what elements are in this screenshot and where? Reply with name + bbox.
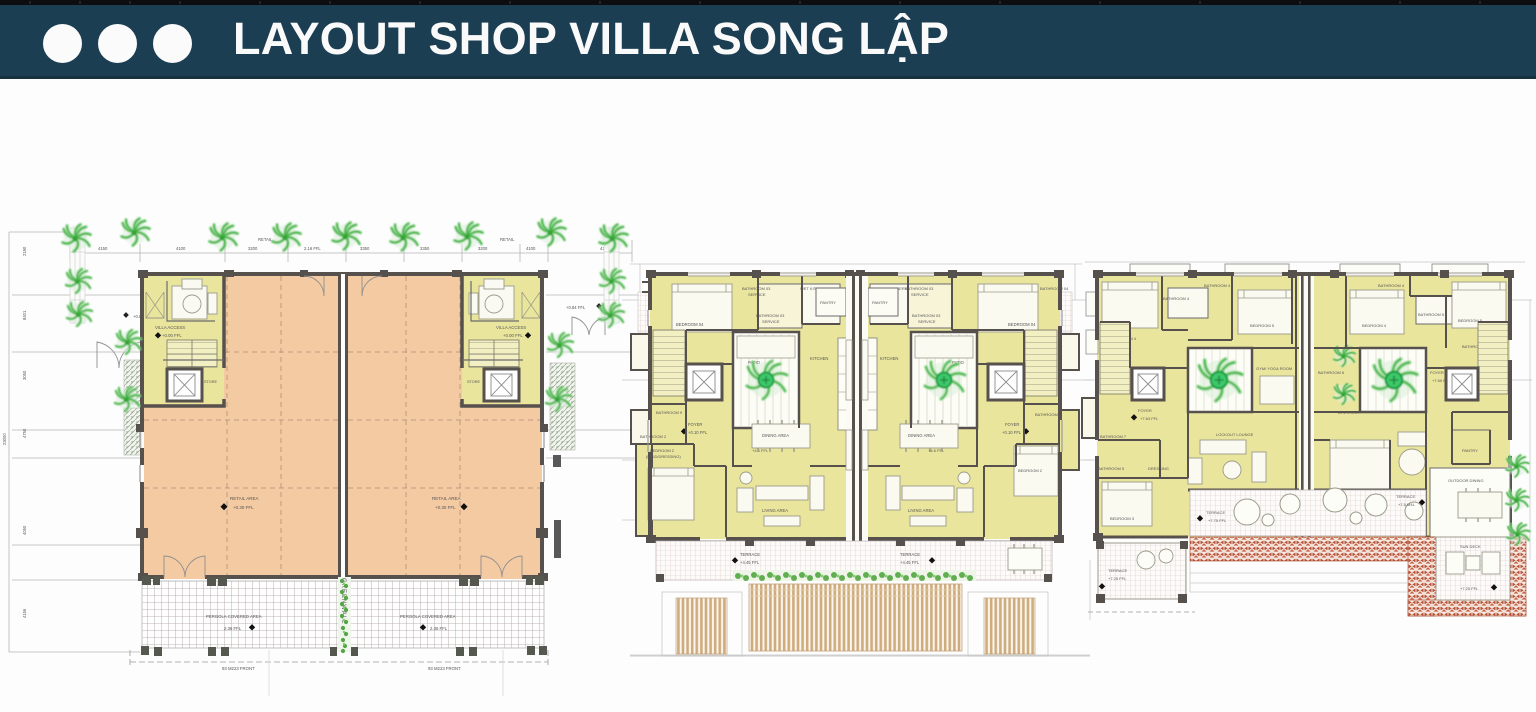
svg-text:93 M223 FRONT: 93 M223 FRONT <box>428 666 461 671</box>
svg-text:KITCHEN: KITCHEN <box>810 356 828 361</box>
svg-text:3200: 3200 <box>478 246 488 251</box>
svg-text:+7.25 FFL: +7.25 FFL <box>1460 586 1479 591</box>
svg-text:+0.30 FFL: +0.30 FFL <box>233 505 254 510</box>
svg-text:PANTRY: PANTRY <box>872 300 888 305</box>
svg-text:TERRACE: TERRACE <box>900 552 920 557</box>
svg-text:+0.84 FFL: +0.84 FFL <box>566 305 586 310</box>
svg-text:PERGOLA COVERED AREA: PERGOLA COVERED AREA <box>400 614 456 619</box>
svg-text:3200: 3200 <box>248 246 258 251</box>
svg-text:RETAIL: RETAIL <box>258 237 273 242</box>
svg-text:2.16 FFL: 2.16 FFL <box>304 246 321 251</box>
svg-text:STORE: STORE <box>204 380 217 384</box>
svg-text:FOYER: FOYER <box>1430 370 1444 375</box>
svg-text:LOCKOUT LOUNGE: LOCKOUT LOUNGE <box>1216 432 1254 437</box>
svg-text:4100: 4100 <box>176 246 186 251</box>
svg-text:BATHROOM 6: BATHROOM 6 <box>1318 370 1345 375</box>
svg-text:BEDROOM 04: BEDROOM 04 <box>676 322 704 327</box>
svg-text:PANTRY: PANTRY <box>820 300 836 305</box>
svg-text:STORE: STORE <box>467 380 480 384</box>
svg-text:FOYER: FOYER <box>1138 408 1152 413</box>
svg-text:BATHROOM 4: BATHROOM 4 <box>1378 283 1405 288</box>
svg-text:SERVICE: SERVICE <box>748 292 766 297</box>
svg-text:TERRACE: TERRACE <box>740 552 760 557</box>
svg-text:BATHROOM 04: BATHROOM 04 <box>1040 286 1069 291</box>
svg-text:+7.75 FFL: +7.75 FFL <box>1208 518 1227 523</box>
svg-text:3350: 3350 <box>420 246 430 251</box>
svg-text:BATHROOM 5: BATHROOM 5 <box>1418 312 1445 317</box>
svg-text:+0.10 FFL: +0.10 FFL <box>1002 430 1022 435</box>
svg-text:23000: 23000 <box>2 433 7 445</box>
svg-text:VILLA ACCESS: VILLA ACCESS <box>496 325 526 330</box>
svg-text:+0.00 FFL: +0.00 FFL <box>503 333 523 338</box>
svg-text:2190: 2190 <box>22 246 27 256</box>
svg-text:BATHROOM 7: BATHROOM 7 <box>1100 434 1127 439</box>
svg-text:GYM/ YOGA ROOM: GYM/ YOGA ROOM <box>1256 366 1292 371</box>
svg-text:PANTRY: PANTRY <box>1462 448 1478 453</box>
svg-text:BATHROOM 2: BATHROOM 2 <box>1035 412 1062 417</box>
svg-text:8401: 8401 <box>22 310 27 320</box>
svg-text:DINING AREA: DINING AREA <box>908 433 935 438</box>
svg-text:BATHROOM 4: BATHROOM 4 <box>1163 296 1190 301</box>
svg-text:DRESSING: DRESSING <box>1148 466 1169 471</box>
svg-text:KITCHEN: KITCHEN <box>880 356 898 361</box>
svg-text:3050: 3050 <box>22 370 27 380</box>
svg-text:BATHROOM 2: BATHROOM 2 <box>640 434 667 439</box>
svg-text:RETAIL AREA: RETAIL AREA <box>432 496 461 501</box>
svg-text:+4.6 FFL: +4.6 FFL <box>752 448 769 453</box>
svg-text:BEDROOM 2: BEDROOM 2 <box>1018 468 1043 473</box>
svg-text:SERVICE: SERVICE <box>911 292 929 297</box>
svg-text:DINING AREA: DINING AREA <box>762 433 789 438</box>
svg-text:BEDROOM 2: BEDROOM 2 <box>650 448 675 453</box>
svg-text:+7.63 FFL: +7.63 FFL <box>1140 416 1159 421</box>
svg-text:OUTDOOR DINING: OUTDOOR DINING <box>1448 478 1484 483</box>
svg-text:BATHROOM 03: BATHROOM 03 <box>756 313 785 318</box>
svg-text:BATHROOM 5: BATHROOM 5 <box>1098 466 1125 471</box>
svg-text:BATHROOM 03: BATHROOM 03 <box>905 286 934 291</box>
svg-text:2.36 FFL: 2.36 FFL <box>430 626 448 631</box>
svg-text:PERGOLA COVERED AREA: PERGOLA COVERED AREA <box>206 614 262 619</box>
svg-text:LIVING AREA: LIVING AREA <box>908 508 934 513</box>
svg-text:BEDROOM 4: BEDROOM 4 <box>1362 323 1387 328</box>
svg-text:BEDROOM 5: BEDROOM 5 <box>1250 323 1275 328</box>
svg-text:FOYER: FOYER <box>688 422 702 427</box>
svg-text:3350: 3350 <box>360 246 370 251</box>
svg-text:+0.10 FFL: +0.10 FFL <box>688 430 708 435</box>
svg-text:+4.45 FFL: +4.45 FFL <box>740 560 760 565</box>
svg-text:SERVICE: SERVICE <box>762 319 780 324</box>
svg-text:2.36 FFL: 2.36 FFL <box>224 626 242 631</box>
svg-text:BATHROOM 9: BATHROOM 9 <box>656 410 683 415</box>
svg-text:SUN DECK: SUN DECK <box>1460 544 1481 549</box>
svg-text:RETAIL AREA: RETAIL AREA <box>230 496 259 501</box>
svg-text:BEDROOM 3: BEDROOM 3 <box>1110 516 1135 521</box>
svg-text:FOYER: FOYER <box>1005 422 1019 427</box>
svg-text:BATHROOM 03: BATHROOM 03 <box>912 313 941 318</box>
svg-text:LIVING AREA: LIVING AREA <box>762 508 788 513</box>
svg-text:93 M223 FRONT: 93 M223 FRONT <box>222 666 255 671</box>
svg-text:4750: 4750 <box>22 428 27 438</box>
svg-text:TERRACE: TERRACE <box>1206 510 1225 515</box>
svg-text:+0.30 FFL: +0.30 FFL <box>435 505 456 510</box>
svg-text:BATHROOM 4: BATHROOM 4 <box>1204 283 1231 288</box>
svg-text:4150: 4150 <box>98 246 108 251</box>
svg-text:4050: 4050 <box>22 525 27 535</box>
svg-text:BEDROOM 04: BEDROOM 04 <box>1008 322 1036 327</box>
svg-text:4156: 4156 <box>22 608 27 618</box>
svg-text:+7.5 M4L: +7.5 M4L <box>1398 502 1416 507</box>
svg-text:+7.25 FFL: +7.25 FFL <box>1108 576 1127 581</box>
svg-text:+4.45 FFL: +4.45 FFL <box>900 560 920 565</box>
svg-text:BATHROOM 03: BATHROOM 03 <box>742 286 771 291</box>
svg-text:SERVICE: SERVICE <box>918 319 936 324</box>
svg-text:VILLA ACCESS: VILLA ACCESS <box>155 325 185 330</box>
svg-text:4100: 4100 <box>526 246 536 251</box>
svg-text:TERRACE: TERRACE <box>1396 494 1415 499</box>
svg-text:RETAIL: RETAIL <box>500 237 515 242</box>
svg-text:+0.00 FFL: +0.00 FFL <box>162 333 182 338</box>
svg-text:TERRACE: TERRACE <box>1108 568 1127 573</box>
